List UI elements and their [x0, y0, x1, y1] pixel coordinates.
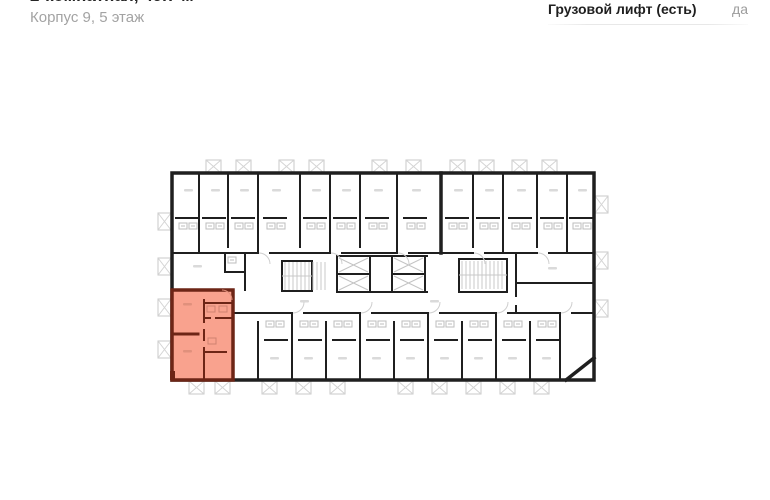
- room-area-label: [183, 303, 192, 306]
- wall-pillar: [170, 371, 175, 380]
- balcony-row-bottom: [189, 381, 549, 394]
- balcony-column-left: [158, 213, 171, 358]
- stairwell-left: [282, 261, 325, 291]
- balcony-column-right: [595, 196, 608, 317]
- stairwell-right: [459, 259, 507, 292]
- highlighted-apartment[interactable]: [170, 290, 233, 380]
- bottom-apartment-walls: [258, 313, 594, 380]
- room-area-label: [183, 350, 192, 353]
- floor-plan[interactable]: [0, 0, 770, 500]
- top-apartment-walls: [176, 173, 592, 253]
- elevator-core: [282, 256, 507, 292]
- listing-page: { "header": { "title": "2-комнатная, 49.…: [0, 0, 770, 500]
- corridor-walls: [172, 253, 594, 313]
- balcony-row-top: [206, 160, 557, 173]
